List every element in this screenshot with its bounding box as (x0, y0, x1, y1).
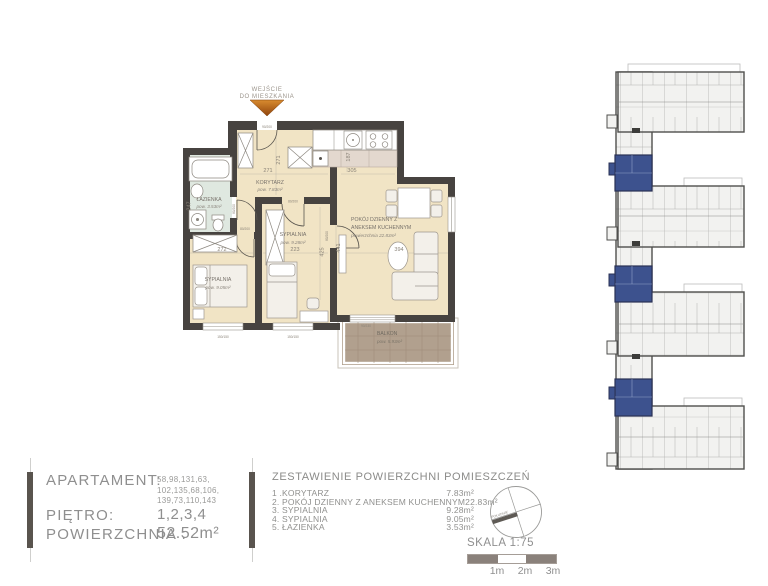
balkon-area: pow. 5.93m² (376, 339, 402, 344)
entrance-label-2: DO MIESZKANIA (240, 94, 295, 100)
room-list-label: 5. ŁAZIENKA (272, 523, 325, 532)
scale-segment-light (498, 555, 526, 563)
dim-korytarz-w: 271 (263, 168, 272, 174)
dim-pokoj-h: 441 (336, 243, 342, 252)
pokoj-name-2: ANEKSEM KUCHENNYM (351, 225, 411, 231)
door-living-size: 80/200 (325, 231, 329, 241)
wardrobe-bedroom4 (193, 235, 237, 252)
scale-segment-dark (468, 555, 498, 563)
apartament-label: APARTAMENT: (46, 472, 162, 489)
pietro-value: 1,2,3,4 (157, 506, 206, 523)
divider-bar-left (27, 472, 33, 548)
korytarz-name: KORYTARZ (256, 180, 284, 186)
door-bed3-size: 80/200 (288, 200, 298, 204)
sypialnia3-name: SYPIALNIA (280, 232, 307, 238)
dim-sypialnia4-w: 272 (217, 247, 226, 253)
dim-sypialnia3-w: 223 (290, 247, 299, 253)
dim-pokoj-w: 394 (394, 247, 403, 253)
chair (386, 205, 397, 217)
pokoj-name-1: POKÓJ DZIENNY Z (351, 216, 397, 223)
door-bed4-size: 80/200 (240, 227, 250, 231)
lazienka-area: pow. 3.53m² (195, 204, 221, 209)
window-bed4-size: 150/150 (217, 335, 229, 339)
scale-segment-dark (526, 555, 556, 563)
apartament-numbers-line3: 139,73,110,143 (157, 496, 219, 507)
window-bed3-size: 150/150 (287, 335, 299, 339)
pillow (269, 264, 295, 276)
compass-icon: POŁUDNIE (489, 485, 543, 539)
entrance-label-1: WEJŚCIE (252, 85, 283, 93)
divider-bar-middle (249, 472, 255, 548)
dim-kuchnia-w: 305 (347, 168, 356, 174)
apartment-floor-plan: WEJŚCIE DO MIESZKANIA 90/200 ŁAZIENKA po… (170, 78, 470, 378)
sypialnia3-area: pow. 9.28m² (279, 240, 305, 245)
dim-lazienka-h: 247 (187, 201, 193, 210)
highlighted-unit-2 (609, 266, 652, 302)
balcony-door-size: 90/230 (361, 324, 371, 328)
korytarz-area: pow. 7.83m² (256, 187, 282, 192)
dining-table (398, 188, 430, 218)
pietro-label: PIĘTRO: (46, 507, 114, 524)
dim-sypialnia3-h: 425 (320, 247, 326, 256)
scale-tick-1m: 1m (486, 565, 508, 577)
highlighted-unit-3 (609, 379, 652, 416)
balkon-name: BALKON (377, 331, 398, 337)
apartament-numbers-line1: 58,98,131,63, (157, 475, 219, 486)
highlighted-unit-1 (609, 155, 652, 191)
room-list-row: 5. ŁAZIENKA 3.53m² (272, 523, 474, 532)
dim-kuchnia-d: 187 (346, 152, 352, 161)
desk (300, 311, 328, 322)
scale-tick-3m: 3m (542, 565, 564, 577)
kitchen (313, 130, 397, 167)
nightstand (193, 309, 204, 319)
washbasin (191, 184, 203, 198)
room-list-value: 3.53m² (446, 523, 474, 532)
wardrobe-corridor-left (238, 133, 253, 168)
lazienka-name: ŁAZIENKA (196, 197, 222, 203)
pokoj-area: powierzchnia 22.83m² (350, 233, 396, 238)
room-list-title: ZESTAWIENIE POWIERZCHNI POMIESZCZEŃ (272, 471, 530, 483)
powierzchnia-value: 52.52m² (157, 525, 219, 543)
scale-tick-2m: 2m (514, 565, 536, 577)
wardrobe-corridor-right (288, 147, 312, 168)
building-site-plan (598, 55, 768, 483)
scale-label: SKALA 1:75 (467, 537, 534, 549)
wing-2 (618, 186, 744, 247)
apartament-numbers-line2: 102,135,68,106, (157, 486, 219, 497)
apartament-numbers: 58,98,131,63, 102,135,68,106, 139,73,110… (157, 475, 219, 507)
desk-chair (307, 298, 319, 309)
entrance-arrow-icon (250, 100, 284, 116)
tv-cabinet (339, 235, 346, 273)
chair (431, 190, 442, 202)
dim-korytarz-h: 271 (276, 155, 282, 164)
floorplan-page: { "entrance": {"line1": "WEJŚCIE", "line… (0, 0, 768, 586)
door-bath-size: 80/200 (232, 204, 236, 214)
toilet-bowl (213, 219, 223, 231)
scale-bar (467, 554, 557, 564)
chair (431, 205, 442, 217)
sypialnia4-name: SYPIALNIA (205, 277, 232, 283)
sypialnia4-area: pow. 9.05m² (204, 285, 230, 290)
chair (386, 190, 397, 202)
entrance-size-label: 90/200 (262, 125, 272, 129)
